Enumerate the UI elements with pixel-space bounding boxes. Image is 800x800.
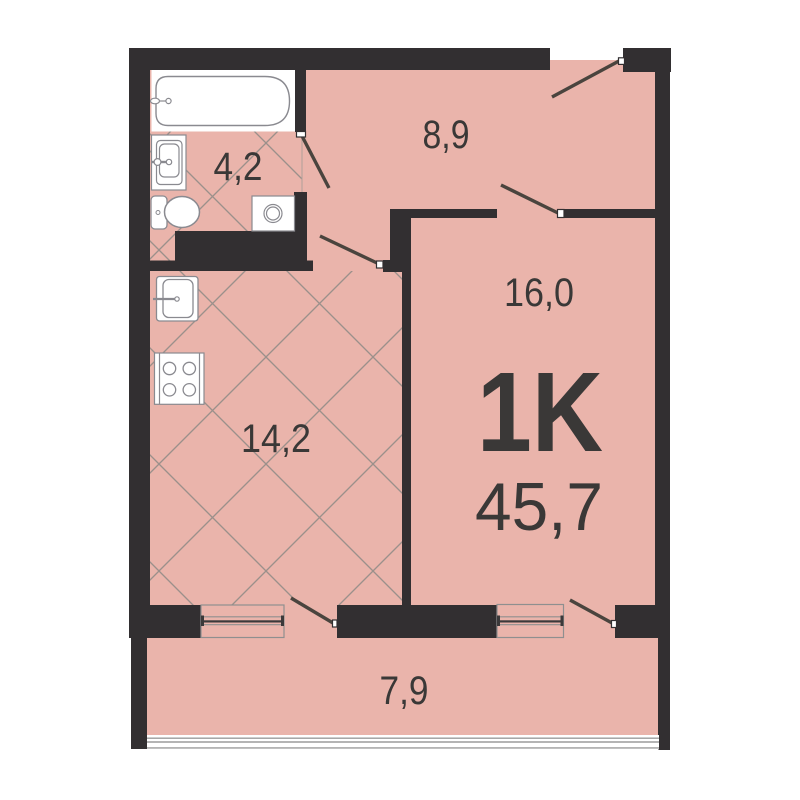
- svg-text:8,9: 8,9: [423, 113, 470, 157]
- svg-text:7,9: 7,9: [380, 669, 429, 713]
- svg-text:16,0: 16,0: [504, 271, 574, 315]
- svg-text:45,7: 45,7: [475, 469, 603, 545]
- svg-text:1K: 1K: [477, 349, 603, 475]
- svg-text:14,2: 14,2: [241, 417, 311, 461]
- svg-text:4,2: 4,2: [214, 145, 263, 189]
